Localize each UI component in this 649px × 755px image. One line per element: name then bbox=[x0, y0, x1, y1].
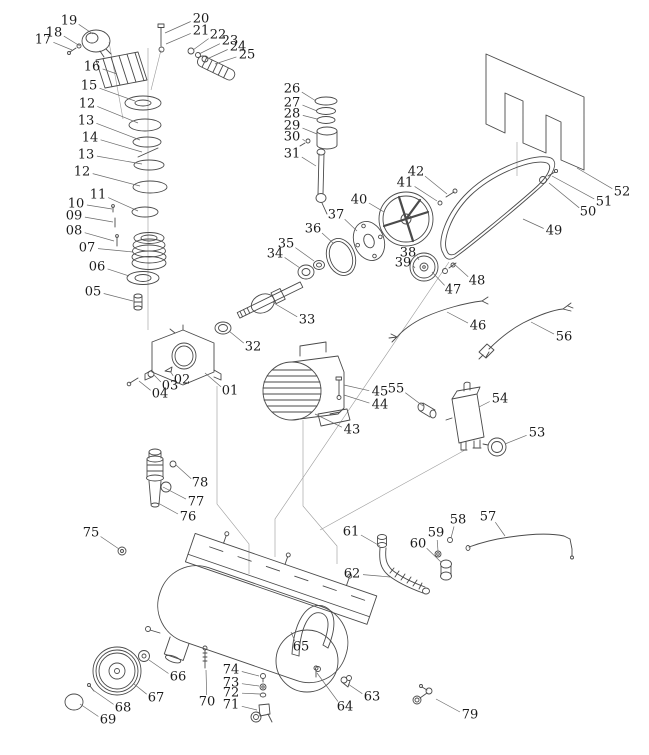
leader-line-57 bbox=[495, 522, 505, 536]
tank-bolt bbox=[118, 547, 126, 555]
leader-line-70 bbox=[206, 670, 207, 695]
motor-bolt bbox=[336, 377, 342, 400]
leader-line-33 bbox=[272, 302, 297, 317]
exploded-parts-diagram: 1718192021222324251615121314131211100908… bbox=[0, 0, 649, 755]
leader-line-56 bbox=[531, 322, 554, 334]
part-number-43: 43 bbox=[344, 423, 361, 438]
part-number-37: 37 bbox=[328, 208, 345, 223]
part-number-32: 32 bbox=[245, 340, 262, 355]
part-number-46: 46 bbox=[470, 319, 487, 334]
leader-line-69 bbox=[80, 704, 98, 717]
leader-line-02 bbox=[170, 371, 173, 376]
leader-line-25 bbox=[215, 57, 236, 64]
part-number-70: 70 bbox=[199, 695, 216, 710]
part-number-58: 58 bbox=[450, 513, 467, 528]
part-number-14: 14 bbox=[82, 131, 99, 146]
leader-line-04 bbox=[139, 381, 151, 390]
leader-line-34 bbox=[285, 257, 300, 268]
part-number-42: 42 bbox=[408, 165, 425, 180]
leader-line-74 bbox=[242, 672, 259, 677]
part-number-62: 62 bbox=[344, 567, 361, 582]
leader-line-55 bbox=[405, 393, 423, 406]
part-number-69: 69 bbox=[100, 713, 117, 728]
leader-line-63 bbox=[348, 684, 362, 694]
leader-line-20 bbox=[165, 22, 191, 34]
leader-line-46 bbox=[447, 312, 468, 323]
part-number-78: 78 bbox=[192, 476, 209, 491]
part-number-34: 34 bbox=[267, 247, 284, 262]
part-number-31: 31 bbox=[284, 147, 301, 162]
leader-line-31 bbox=[302, 157, 316, 166]
air-filter bbox=[68, 30, 112, 57]
drain-valve-stack bbox=[251, 674, 272, 723]
cylinder-gasket bbox=[127, 272, 159, 285]
wheel-washer bbox=[139, 651, 150, 662]
part-number-65: 65 bbox=[293, 640, 310, 655]
piston-pin bbox=[300, 139, 310, 146]
leader-line-64 bbox=[317, 673, 338, 702]
part-number-56: 56 bbox=[556, 330, 573, 345]
leader-line-76 bbox=[158, 503, 178, 514]
part-number-04: 04 bbox=[152, 387, 169, 402]
part-number-49: 49 bbox=[546, 224, 563, 239]
elbow-fitting bbox=[441, 560, 452, 580]
part-number-11: 11 bbox=[90, 188, 107, 203]
part-number-13: 13 bbox=[78, 148, 95, 163]
leader-line-29 bbox=[303, 128, 318, 134]
leader-line-78 bbox=[176, 465, 191, 479]
motor bbox=[263, 342, 350, 426]
part-number-15: 15 bbox=[81, 79, 98, 94]
part-number-66: 66 bbox=[170, 670, 187, 685]
leader-line-41 bbox=[415, 186, 437, 201]
leader-line-59 bbox=[437, 540, 438, 551]
part-number-47: 47 bbox=[445, 283, 462, 298]
part-number-67: 67 bbox=[148, 691, 165, 706]
part-number-30: 30 bbox=[284, 130, 301, 145]
leader-line-10 bbox=[87, 205, 112, 209]
leader-line-23 bbox=[199, 44, 220, 54]
flywheel-bolt bbox=[438, 189, 457, 205]
leader-line-26 bbox=[302, 92, 316, 101]
pipe-ball bbox=[448, 538, 453, 543]
part-number-33: 33 bbox=[299, 313, 316, 328]
pressure-switch bbox=[446, 382, 484, 450]
part-number-79: 79 bbox=[462, 708, 479, 723]
leader-line-05 bbox=[104, 294, 133, 302]
leader-line-13 bbox=[97, 156, 142, 164]
crankshaft bbox=[235, 277, 306, 324]
part-number-53: 53 bbox=[529, 426, 546, 441]
leader-line-17 bbox=[53, 42, 72, 50]
pipe-fitting bbox=[435, 551, 441, 557]
construction-lines bbox=[109, 42, 517, 574]
part-number-05: 05 bbox=[85, 285, 102, 300]
flywheel bbox=[379, 192, 433, 246]
part-number-19: 19 bbox=[61, 14, 78, 29]
head-bolt bbox=[158, 24, 164, 52]
piston bbox=[317, 127, 337, 149]
belt-guard-grille bbox=[486, 54, 584, 184]
piston-rings bbox=[315, 97, 337, 124]
leader-line-44 bbox=[344, 395, 369, 403]
leader-line-52 bbox=[577, 168, 612, 189]
leader-line-71 bbox=[242, 706, 257, 710]
leader-line-47 bbox=[432, 272, 445, 285]
part-number-12: 12 bbox=[79, 97, 96, 112]
regulator-valve bbox=[147, 449, 177, 507]
leader-line-54 bbox=[479, 402, 490, 408]
leader-line-32 bbox=[229, 331, 244, 343]
leader-line-30 bbox=[303, 139, 306, 141]
connecting-rod bbox=[316, 149, 327, 214]
part-number-39: 39 bbox=[395, 256, 412, 271]
leader-line-18 bbox=[64, 36, 80, 46]
part-number-52: 52 bbox=[614, 185, 631, 200]
bearing bbox=[298, 265, 314, 279]
leader-line-58 bbox=[451, 527, 454, 539]
leader-line-75 bbox=[101, 537, 119, 550]
leader-line-48 bbox=[453, 263, 468, 277]
oil-plug bbox=[134, 294, 142, 310]
sleeve-ring bbox=[215, 322, 231, 334]
leader-line-49 bbox=[523, 219, 544, 229]
leader-line-53 bbox=[505, 435, 527, 444]
part-number-07: 07 bbox=[79, 241, 96, 256]
part-number-68: 68 bbox=[115, 701, 132, 716]
cylinder-head bbox=[96, 52, 147, 88]
leader-line-36 bbox=[322, 233, 333, 243]
leader-line-79 bbox=[436, 699, 460, 712]
part-number-12: 12 bbox=[74, 165, 91, 180]
leader-line-21 bbox=[166, 33, 191, 44]
leader-line-50 bbox=[549, 183, 579, 208]
leader-line-19 bbox=[79, 24, 93, 34]
part-number-77: 77 bbox=[188, 495, 205, 510]
part-number-16: 16 bbox=[84, 60, 101, 75]
part-number-48: 48 bbox=[469, 274, 486, 289]
leader-line-28 bbox=[303, 115, 317, 119]
leader-line-35 bbox=[295, 248, 314, 261]
outlet-pipe bbox=[466, 534, 574, 559]
cylinder bbox=[132, 233, 166, 270]
part-number-21: 21 bbox=[193, 24, 210, 39]
part-number-26: 26 bbox=[284, 82, 301, 97]
leader-line-67 bbox=[134, 684, 147, 694]
diagram-canvas: 1718192021222324251615121314131211100908… bbox=[0, 0, 649, 755]
part-number-61: 61 bbox=[343, 525, 360, 540]
part-number-71: 71 bbox=[223, 698, 240, 713]
part-number-55: 55 bbox=[388, 382, 405, 397]
part-number-36: 36 bbox=[305, 222, 322, 237]
leader-line-14 bbox=[101, 140, 142, 152]
leader-line-68 bbox=[93, 690, 114, 704]
leader-line-66 bbox=[149, 660, 169, 674]
pressure-gauge bbox=[483, 438, 506, 456]
part-number-06: 06 bbox=[89, 260, 106, 275]
part-number-50: 50 bbox=[580, 205, 597, 220]
part-number-60: 60 bbox=[410, 537, 427, 552]
leader-line-73 bbox=[242, 684, 259, 686]
leader-line-03 bbox=[154, 375, 161, 382]
drive-belt bbox=[441, 157, 555, 260]
drain-fitting bbox=[413, 685, 432, 705]
outlet-hose bbox=[380, 548, 430, 594]
part-number-54: 54 bbox=[492, 392, 509, 407]
wheel-pin bbox=[88, 684, 95, 692]
part-number-13: 13 bbox=[78, 114, 95, 129]
leader-line-43 bbox=[315, 414, 342, 427]
bearing-washer bbox=[314, 261, 325, 270]
part-number-51: 51 bbox=[596, 195, 613, 210]
leader-line-62 bbox=[363, 575, 390, 577]
part-number-01: 01 bbox=[222, 384, 239, 399]
part-number-75: 75 bbox=[83, 526, 100, 541]
part-number-09: 09 bbox=[66, 209, 83, 224]
part-labels: 1718192021222324251615121314131211100908… bbox=[35, 12, 631, 728]
leader-line-12 bbox=[93, 174, 140, 186]
valve-plate-stack bbox=[112, 96, 167, 246]
leader-line-27 bbox=[303, 105, 318, 111]
part-number-57: 57 bbox=[480, 510, 497, 525]
leader-line-24 bbox=[207, 50, 228, 60]
leader-line-77 bbox=[163, 487, 186, 499]
part-number-40: 40 bbox=[351, 193, 368, 208]
part-number-08: 08 bbox=[66, 224, 83, 239]
leader-line-42 bbox=[425, 176, 447, 194]
cover-gasket bbox=[321, 234, 360, 279]
leader-line-06 bbox=[108, 269, 129, 276]
hubcap bbox=[65, 694, 83, 710]
parts-artwork bbox=[65, 24, 584, 722]
pulley-washers bbox=[443, 263, 457, 274]
part-number-25: 25 bbox=[239, 48, 256, 63]
leader-line-22 bbox=[193, 39, 209, 50]
leader-line-72 bbox=[242, 693, 260, 694]
leader-line-15 bbox=[100, 88, 136, 101]
capacitor bbox=[418, 403, 436, 418]
leader-line-13 bbox=[96, 123, 140, 140]
leader-line-51 bbox=[552, 176, 594, 199]
part-number-59: 59 bbox=[428, 526, 445, 541]
wheel bbox=[93, 647, 141, 695]
part-number-44: 44 bbox=[372, 398, 389, 413]
part-number-76: 76 bbox=[180, 510, 197, 525]
part-number-64: 64 bbox=[337, 700, 354, 715]
leader-line-07 bbox=[98, 249, 133, 252]
part-number-63: 63 bbox=[364, 690, 381, 705]
leader-line-37 bbox=[345, 219, 357, 231]
leader-line-09 bbox=[85, 217, 113, 222]
leader-line-01 bbox=[205, 373, 221, 387]
